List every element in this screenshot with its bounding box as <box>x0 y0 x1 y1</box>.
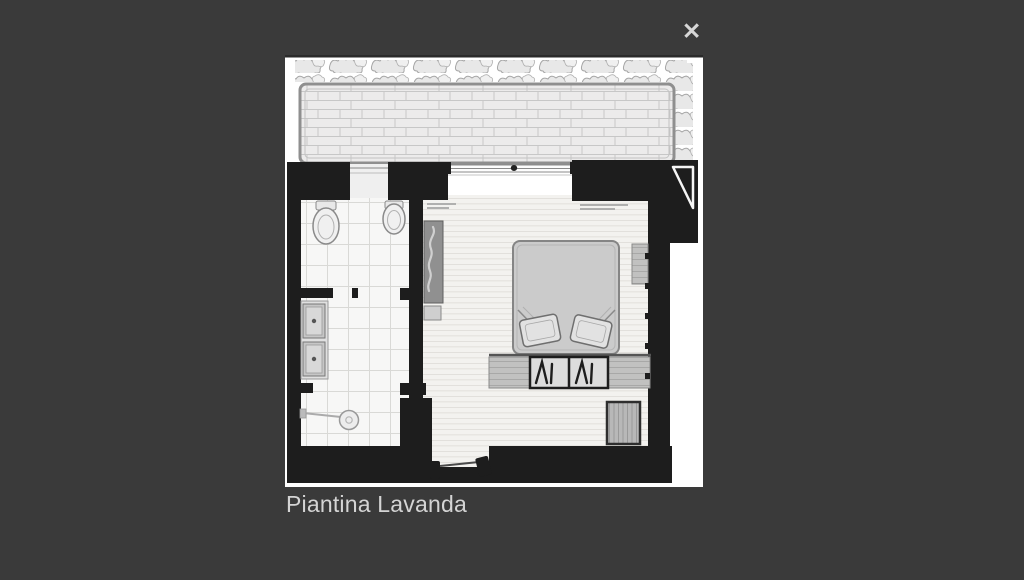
close-icon[interactable]: ✕ <box>682 20 701 43</box>
terrace-door <box>350 164 388 198</box>
rug <box>607 402 640 444</box>
image-caption: Piantina Lavanda <box>286 491 703 518</box>
bidet <box>383 201 405 234</box>
toilet <box>313 201 339 244</box>
floorplan-figure: Piantina Lavanda <box>285 55 703 518</box>
sink-vanity <box>301 301 328 379</box>
foot-bench-wardrobe <box>489 355 651 388</box>
floorplan-image <box>285 55 703 487</box>
photo-top-edge <box>285 55 703 58</box>
nightstand <box>632 244 648 284</box>
bed <box>513 241 619 354</box>
lightbox-overlay: ✕ <box>0 0 1024 580</box>
terrace <box>300 84 674 163</box>
